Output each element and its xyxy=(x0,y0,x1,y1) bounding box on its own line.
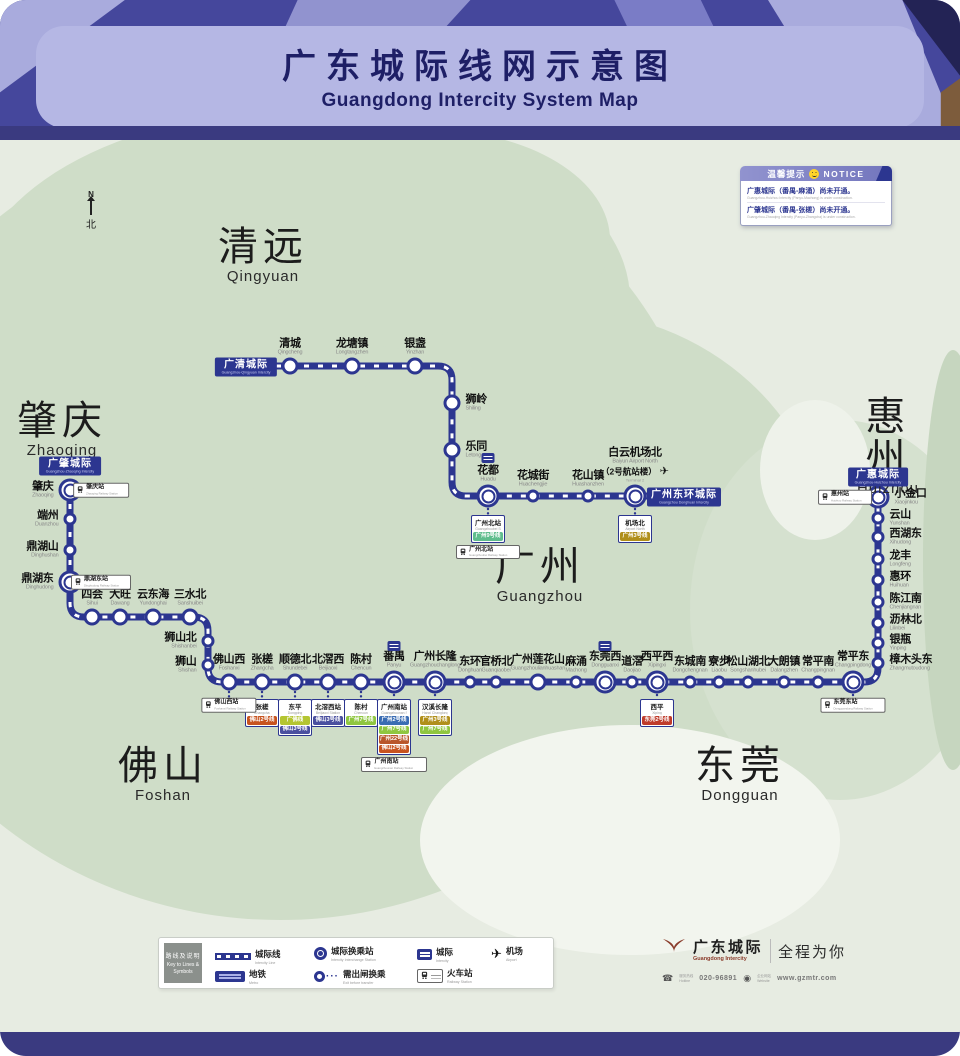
station-label: 官桥北Guanqiaobei xyxy=(480,656,512,674)
railway-station-box: 惠州站Huizhou Railway Station xyxy=(818,490,872,505)
legend-label: 需出闸换乘 xyxy=(343,968,386,980)
station-label: 广州长隆Guangzhouchanglong xyxy=(410,651,460,669)
page-title: 广东城际线网示意图 xyxy=(36,39,924,88)
station-label: 龙塘镇Longtangzhen xyxy=(336,338,368,356)
north-arrow-icon xyxy=(90,201,92,215)
station-label: 云东海Yundonghai xyxy=(137,589,169,607)
train-icon xyxy=(204,701,212,709)
notice-line: 广惠城际（番禺-麻涌）尚未开通。 Guangzhou-Huizhou Inter… xyxy=(747,184,885,202)
intercity-line-swatch-icon xyxy=(215,953,251,960)
legend-label: 机场 xyxy=(506,945,523,957)
station-label: 清城Qingcheng xyxy=(278,338,303,356)
line-name-badge: 广清城际Guangzhou-Qingyuan Intercity xyxy=(215,358,277,377)
hotline-label-en: Hotline xyxy=(679,979,693,983)
station-label: 花山镇Huashanzhen xyxy=(572,470,604,488)
station-marker xyxy=(64,513,77,526)
region-label: 清远Qingyuan xyxy=(218,226,308,285)
legend: 路线及说明 Key to Lines & Symbols 城际线Intercit… xyxy=(158,937,554,989)
station-label: 陈村Chencun xyxy=(350,654,371,672)
station-label: 北滘西Beijiaoxi xyxy=(312,654,344,672)
metro-line-chip: 广佛线 xyxy=(280,716,310,725)
station-marker xyxy=(320,674,337,691)
station-label: 西平西Xipingxi xyxy=(641,651,673,669)
station-marker xyxy=(812,676,825,689)
station-label: 佛山西Foshanxi xyxy=(213,654,245,672)
brand-slogan: 全程为你 xyxy=(778,941,846,962)
legend-label: 城际换乘站 xyxy=(331,945,381,957)
railway-station-box: 鼎湖东站Dinghudong Railway Station xyxy=(71,575,131,590)
intercity-station-icon xyxy=(417,949,432,960)
station-label: 白云机场北Baiyun Airport North（2号航站楼）✈Termina… xyxy=(601,447,669,483)
station-label: 东莞西Dongguanxi xyxy=(589,651,621,669)
region-label: 肇庆Zhaoqing xyxy=(17,400,107,459)
intercity-station-icon xyxy=(482,453,495,463)
station-label: 四会Sihui xyxy=(81,589,102,607)
station-marker xyxy=(872,574,885,587)
station-marker xyxy=(182,609,199,626)
station-marker xyxy=(353,674,370,691)
station-marker xyxy=(527,490,540,503)
station-label: 鼎湖东Dinghudong xyxy=(21,573,53,591)
metro-line-chip: 东莞2号线 xyxy=(642,716,672,725)
exit-transfer-icon xyxy=(314,971,339,982)
station-marker xyxy=(477,485,500,508)
station-marker xyxy=(444,442,461,459)
station-label: 银瓶Yinping xyxy=(890,634,911,652)
station-marker xyxy=(872,617,885,630)
station-label: 道滘Daojiao xyxy=(621,656,642,674)
notice-line-en: Guangzhou-Zhaoqing Intercity (Panyu-Zhan… xyxy=(747,215,871,219)
transfer-box: 北滘西站Beijiaoxi Station佛山3号线 xyxy=(311,699,345,727)
notice-title-en: NOTICE xyxy=(823,169,864,179)
legend-label: 城际线 xyxy=(255,948,281,960)
transfer-box: 西平Xiping东莞2号线 xyxy=(640,699,674,727)
station-marker xyxy=(287,674,304,691)
brand-contact-row: ☎ 服务热线Hotline 020-96891 ◉ 企业网站Website ww… xyxy=(662,973,846,984)
station-marker xyxy=(407,358,424,375)
station-label: 端州Duanzhou xyxy=(35,510,58,528)
metro-line-chip: 广州7号线 xyxy=(346,716,376,725)
metro-line-chip: 广州7号线 xyxy=(420,726,450,735)
metro-line-chip: 佛山3号线 xyxy=(280,726,310,735)
legend-item: 城际换乘站Intercity Interchange Station xyxy=(314,945,381,962)
train-icon xyxy=(76,486,84,494)
line-name-badge: 广州东环城际Guangzhou Donghuan Intercity xyxy=(647,488,721,507)
station-marker xyxy=(530,674,547,691)
transfer-box: 广州南站Guangzhounan Station广州2号线广州7号线广州22号线… xyxy=(377,699,411,772)
train-icon xyxy=(459,548,467,556)
notice-line-zh: 广肇城际（番禺-张槎）尚未开通。 xyxy=(747,205,885,215)
website-url: www.gzmtr.com xyxy=(777,975,837,982)
brand-name-en: Guangdong Intercity xyxy=(693,956,763,962)
notice-line-zh: 广惠城际（番禺-麻涌）尚未开通。 xyxy=(747,186,885,196)
metro-line-chip: 佛山3号线 xyxy=(313,716,343,725)
station-marker xyxy=(112,609,129,626)
station-marker xyxy=(684,676,697,689)
metro-line-chip: 广州22号线 xyxy=(379,735,409,744)
station-label: 番禺Panyu xyxy=(383,651,404,669)
page-subtitle: Guangdong Intercity System Map xyxy=(36,90,924,112)
station-marker xyxy=(145,609,162,626)
station-marker xyxy=(872,637,885,650)
notice-body: 广惠城际（番禺-麻涌）尚未开通。 Guangzhou-Huizhou Inter… xyxy=(740,181,892,226)
metro-line-chip: 广州2号线 xyxy=(379,716,409,725)
station-label: 狮山Shishan xyxy=(175,656,196,674)
legend-item: 火车站Railway Station xyxy=(417,967,475,984)
railway-station-box: 东莞东站Dongguandong Railway Station xyxy=(820,698,885,713)
intercity-station-icon xyxy=(599,641,612,651)
station-marker xyxy=(221,674,238,691)
railway-station-icon xyxy=(417,969,443,983)
legend-key-en: Key to Lines & Symbols xyxy=(164,962,202,975)
station-label: 广州莲花山Guangzhoulianhuashan xyxy=(511,654,565,672)
station-marker xyxy=(582,490,595,503)
train-icon xyxy=(823,701,831,709)
notice: 温馨提示 NOTICE 广惠城际（番禺-麻涌）尚未开通。 Guangzhou-H… xyxy=(740,166,892,226)
station-label: 肇庆Zhaoqing xyxy=(32,481,53,499)
station-label: 沥林北Lilinbei xyxy=(890,614,922,632)
transfer-box: 广州北站Guangzhoubei Station广州9号线广州北站Guangzh… xyxy=(471,515,505,559)
phone-icon: ☎ xyxy=(662,973,673,984)
station-label: 银盏Yinzhan xyxy=(404,338,425,356)
legend-label: 火车站 xyxy=(447,967,475,979)
transfer-box: 东平Dongping广佛线佛山3号线 xyxy=(278,699,312,736)
legend-label: 城际 xyxy=(436,946,453,958)
legend-key-zh: 路线及说明 xyxy=(165,951,200,960)
line-name-badge: 广肇城际Guangzhou-Zhaoqing Intercity xyxy=(39,457,101,476)
station-marker xyxy=(424,671,447,694)
station-marker xyxy=(490,676,503,689)
metro-line-chip: 广州3号线 xyxy=(420,716,450,725)
station-marker xyxy=(254,674,271,691)
station-label: 狮岭Shiling xyxy=(466,394,487,412)
railway-station-box: 广州北站Guangzhoubei Railway Station xyxy=(456,545,520,560)
compass: N 北 xyxy=(78,190,104,231)
station-label: 常平南Changpingnan xyxy=(801,656,834,674)
station-marker xyxy=(626,676,639,689)
station-label: 云山Yunshan xyxy=(890,509,911,527)
legend-item: 地铁Metro xyxy=(215,968,266,985)
station-label: 松山湖北Songshanhubei xyxy=(727,656,770,674)
region-label: 东莞Dongguan xyxy=(695,745,785,804)
station-marker xyxy=(872,512,885,525)
station-label: 龙丰Longfeng xyxy=(890,550,911,568)
station-label: 花都Huadu xyxy=(477,465,498,483)
map-canvas: N 北 清城Qingcheng龙塘镇Longtangzhen银盏Yinzhan狮… xyxy=(0,0,960,1032)
station-marker xyxy=(646,671,669,694)
station-label: 三水北Sanshuibei xyxy=(174,589,206,607)
website-icon: ◉ xyxy=(743,973,751,984)
station-label: 惠环Huihuan xyxy=(890,571,911,589)
station-label: 小金口Xiaojinkou xyxy=(895,488,927,506)
airplane-icon: ✈ xyxy=(660,466,669,478)
station-marker xyxy=(84,609,101,626)
station-label: 大旺Dawang xyxy=(109,589,130,607)
station-label: 鼎湖山Dinghushan xyxy=(26,541,58,559)
header-bottom-strip xyxy=(0,126,960,140)
station-marker xyxy=(713,676,726,689)
region-label: 佛山Foshan xyxy=(118,745,208,804)
legend-label: 地铁 xyxy=(249,968,266,980)
metro-line-chip: 佛山2号线 xyxy=(247,716,277,725)
header-banner: 广东城际线网示意图 Guangdong Intercity System Map xyxy=(36,26,924,128)
station-marker xyxy=(594,671,617,694)
station-marker xyxy=(64,544,77,557)
station-marker xyxy=(842,671,865,694)
legend-item: ✈ 机场Airport xyxy=(491,945,523,962)
website-label-en: Website xyxy=(757,979,771,983)
map-poster: N 北 清城Qingcheng龙塘镇Longtangzhen银盏Yinzhan狮… xyxy=(0,0,960,1056)
station-marker xyxy=(872,531,885,544)
airplane-icon: ✈ xyxy=(491,946,502,962)
legend-key: 路线及说明 Key to Lines & Symbols xyxy=(164,943,202,983)
station-label: 陈江南Chenjiangnan xyxy=(890,593,922,611)
compass-north-label: 北 xyxy=(78,216,104,231)
train-icon xyxy=(74,578,82,586)
legend-item: 需出闸换乘Exit before transfer xyxy=(314,968,386,985)
station-label: 樟木头东Zhangmutoudong xyxy=(890,654,933,672)
station-marker xyxy=(383,671,406,694)
station-marker xyxy=(872,553,885,566)
legend-item: 城际Intercity xyxy=(417,946,453,963)
brand-logo-icon xyxy=(662,938,686,964)
station-marker xyxy=(872,657,885,670)
notice-header: 温馨提示 NOTICE xyxy=(740,166,892,181)
station-label: 西湖东Xihudong xyxy=(890,528,922,546)
website-label-zh: 企业网站 xyxy=(757,974,771,978)
metro-line-swatch-icon xyxy=(215,971,245,982)
station-label: 常平东Changpingdong xyxy=(835,651,871,669)
hotline-label-zh: 服务热线 xyxy=(679,974,693,978)
station-marker xyxy=(778,676,791,689)
station-label: 东环Donghuan xyxy=(458,656,482,674)
metro-line-chip: 广州9号线 xyxy=(473,532,503,541)
station-marker xyxy=(282,358,299,375)
station-marker xyxy=(570,676,583,689)
station-label: 顺德北Shundebei xyxy=(279,654,311,672)
railway-station-box: 佛山西站Foshanxi Railway Station xyxy=(201,698,256,713)
brand-block: 广东城际 Guangdong Intercity 全程为你 ☎ 服务热线Hotl… xyxy=(662,938,846,984)
smiley-icon xyxy=(809,169,819,179)
metro-line-chip: 广州3号线 xyxy=(620,532,650,541)
divider xyxy=(770,939,771,963)
brand-row: 广东城际 Guangdong Intercity 全程为你 xyxy=(662,938,846,964)
train-icon xyxy=(821,493,829,501)
line-name-badge: 广惠城际Guangzhou-Huizhou Intercity xyxy=(848,468,908,487)
notice-line-en: Guangzhou-Huizhou Intercity (Panyu-Macho… xyxy=(747,196,871,200)
railway-station-box: 肇庆站Zhaoqing Railway Station xyxy=(73,483,129,498)
station-label: 狮山北Shishanbei xyxy=(164,632,196,650)
station-marker xyxy=(464,676,477,689)
transfer-box: 陈村Chencun广州7号线 xyxy=(344,699,378,727)
intercity-station-icon xyxy=(388,641,401,651)
station-label: 东城南Dongchengnan xyxy=(673,656,708,674)
station-marker xyxy=(872,596,885,609)
metro-line-chip: 佛山2号线 xyxy=(379,745,409,754)
station-label: 大朗镇Dalangzhen xyxy=(768,656,800,674)
metro-line-chip: 广州7号线 xyxy=(379,726,409,735)
station-label: 张槎Zhangcha xyxy=(251,654,274,672)
station-marker xyxy=(344,358,361,375)
station-marker xyxy=(444,395,461,412)
train-icon xyxy=(364,760,372,768)
railway-station-box: 广州南站Guangzhounan Railway Station xyxy=(361,757,426,772)
station-marker xyxy=(742,676,755,689)
transfer-box: 机场北Airport North广州3号线 xyxy=(618,515,652,543)
interchange-station-icon xyxy=(314,947,327,960)
notice-line: 广肇城际（番禺-张槎）尚未开通。 Guangzhou-Zhaoqing Inte… xyxy=(747,202,885,221)
legend-item: 城际线Intercity Line xyxy=(215,948,281,965)
header: 广东城际线网示意图 Guangdong Intercity System Map xyxy=(0,0,960,140)
brand-name: 广东城际 xyxy=(693,940,763,957)
transfer-box: 汉溪长隆Hanxi Changlong广州3号线广州7号线 xyxy=(418,699,452,736)
station-label: 麻涌Machong xyxy=(565,656,586,674)
station-marker xyxy=(624,485,647,508)
notice-title-zh: 温馨提示 xyxy=(767,168,805,180)
station-label: 花城街Huachengjie xyxy=(517,470,549,488)
hotline-number: 020-96891 xyxy=(699,975,737,982)
station-marker xyxy=(202,635,215,648)
